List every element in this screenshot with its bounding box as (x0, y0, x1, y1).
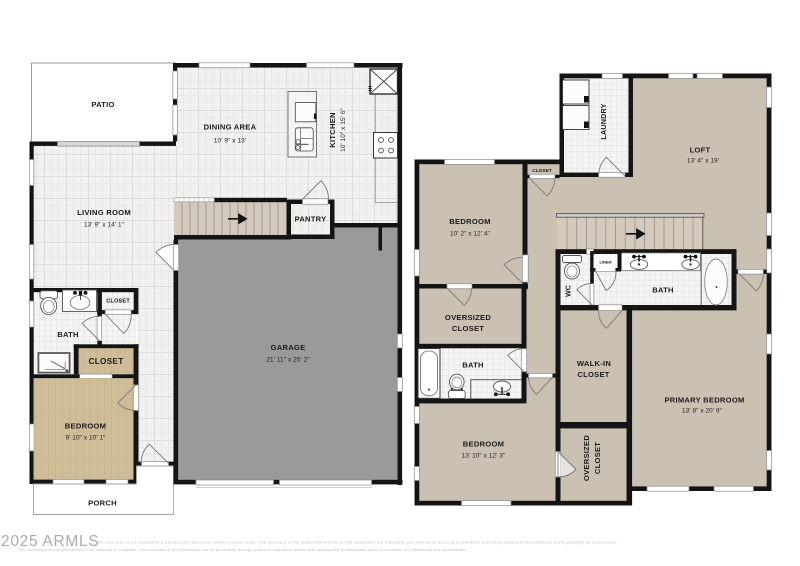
svg-text:13' 9" x 14' 1": 13' 9" x 14' 1" (84, 222, 124, 229)
svg-text:OVERSIZED: OVERSIZED (445, 313, 491, 322)
svg-text:This floor plan is for illustr: This floor plan is for illustrative purp… (95, 540, 617, 545)
svg-text:CLOSET: CLOSET (577, 370, 609, 379)
svg-text:BEDROOM: BEDROOM (463, 440, 504, 449)
svg-text:PATIO: PATIO (91, 100, 114, 109)
svg-text:BATH: BATH (652, 286, 674, 295)
svg-text:LOFT: LOFT (690, 146, 711, 155)
svg-text:OVERSIZED: OVERSIZED (582, 435, 591, 481)
svg-text:BEDROOM: BEDROOM (65, 422, 106, 431)
svg-text:LIVING ROOM: LIVING ROOM (77, 208, 131, 217)
svg-text:WC: WC (566, 285, 573, 297)
svg-text:CLOSET: CLOSET (593, 442, 602, 474)
svg-text:PRIMARY BEDROOM: PRIMARY BEDROOM (664, 396, 744, 405)
svg-text:BEDROOM: BEDROOM (449, 217, 490, 226)
svg-text:BATH: BATH (462, 361, 484, 370)
svg-text:KITCHEN: KITCHEN (328, 112, 337, 148)
svg-text:CLOSET: CLOSET (532, 168, 552, 174)
svg-text:10' 2" x 12' 4": 10' 2" x 12' 4" (450, 231, 490, 238)
svg-text:13' 8" x 20' 8": 13' 8" x 20' 8" (682, 408, 722, 415)
svg-text:10' 9" x 13': 10' 9" x 13' (214, 138, 246, 145)
svg-text:WALK-IN: WALK-IN (577, 359, 611, 368)
svg-text:CLOSET: CLOSET (106, 299, 130, 305)
svg-text:This illustration is not guara: This illustration is not guaranteed to b… (17, 547, 467, 552)
svg-text:CLOSET: CLOSET (88, 357, 123, 366)
svg-text:LINEN: LINEN (600, 260, 612, 265)
svg-text:13' 4" x 19': 13' 4" x 19' (687, 158, 719, 165)
svg-text:PANTRY: PANTRY (295, 215, 327, 224)
svg-text:BATH: BATH (57, 330, 79, 339)
svg-text:9' 10" x 10' 1": 9' 10" x 10' 1" (65, 435, 105, 442)
svg-text:CLOSET: CLOSET (452, 324, 484, 333)
svg-text:21' 11" x 25' 2": 21' 11" x 25' 2" (266, 357, 309, 364)
svg-text:LAUNDRY: LAUNDRY (599, 103, 608, 139)
svg-text:PORCH: PORCH (88, 499, 117, 508)
svg-text:10' 10" x 15' 6": 10' 10" x 15' 6" (340, 108, 347, 152)
svg-text:13' 10" x 12' 3": 13' 10" x 12' 3" (462, 453, 506, 460)
svg-text:DINING AREA: DINING AREA (204, 123, 257, 132)
svg-text:GARAGE: GARAGE (271, 343, 306, 352)
